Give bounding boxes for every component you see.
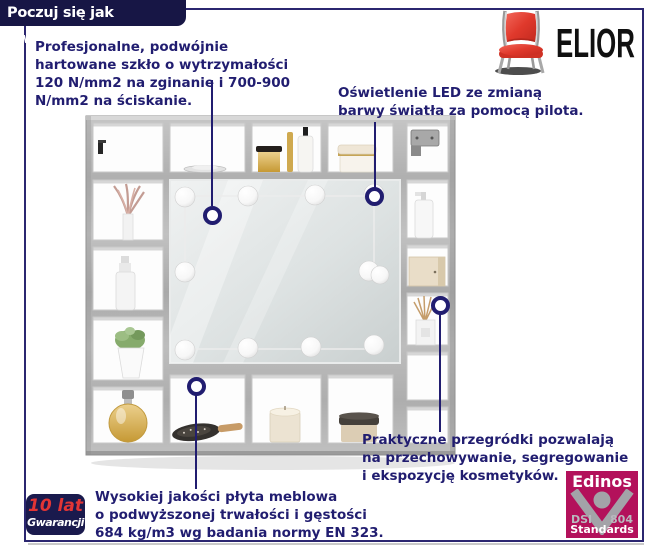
callout-glass: Profesjonalne, podwójnie hartowane szkło… xyxy=(35,38,290,110)
warranty-label: Gwarancji xyxy=(26,516,85,530)
callout-board-line2: o podwyższonej trwałości i gęstości xyxy=(95,506,384,524)
product-infographic: Poczuj się jak gwiazda! ELIOR xyxy=(0,0,650,560)
callout-ring-glass xyxy=(203,206,222,225)
callout-glass-line4: N/mm2 na ściskanie. xyxy=(35,92,290,110)
callout-led-line2: barwy światła za pomocą pilota. xyxy=(338,102,584,120)
callout-shelves-line2: na przechowywanie, segregowanie xyxy=(362,449,628,467)
product-image-mirror-cabinet xyxy=(78,110,458,476)
frame-border-top xyxy=(184,8,644,10)
edinos-brand: Edinos xyxy=(566,472,638,491)
callout-shelves-line1: Praktyczne przegródki pozwalają xyxy=(362,431,628,449)
led-bulb xyxy=(175,187,195,207)
led-bulb xyxy=(175,262,195,282)
candle xyxy=(270,406,300,442)
led-bulb xyxy=(364,335,384,355)
callout-line-board xyxy=(195,395,197,489)
led-bulb xyxy=(175,340,195,360)
edinos-standards: Standards xyxy=(566,523,638,536)
callout-led-line1: Oświetlenie LED ze zmianą xyxy=(338,84,584,102)
cream-jar xyxy=(338,145,376,172)
frame-border-right xyxy=(642,8,644,542)
callout-line-glass xyxy=(211,80,213,206)
callout-line-shelves xyxy=(439,314,441,432)
callout-board-line3: 684 kg/m3 wg badania normy EN 323. xyxy=(95,524,384,542)
red-chair-icon xyxy=(494,10,548,76)
tray xyxy=(184,165,226,172)
callout-led: Oświetlenie LED ze zmianą barwy światła … xyxy=(338,84,584,120)
callout-ring-led xyxy=(365,187,384,206)
led-bulb xyxy=(238,338,258,358)
led-bulb xyxy=(301,337,321,357)
warranty-value: 10 lat xyxy=(26,497,85,516)
edinos-badge: Edinos DSI 804 Standards xyxy=(566,471,638,538)
warranty-badge: 10 lat Gwarancji xyxy=(26,494,85,535)
promo-banner: Poczuj się jak gwiazda! xyxy=(0,0,186,26)
frame-border-left xyxy=(24,25,26,542)
callout-glass-line3: 120 N/mm2 na zginanie i 700-900 xyxy=(35,74,290,92)
callout-glass-line1: Profesjonalne, podwójnie xyxy=(35,38,290,56)
callout-ring-board xyxy=(187,377,206,396)
callout-glass-line2: hartowane szkło o wytrzymałości xyxy=(35,56,290,74)
callout-board: Wysokiej jakości płyta meblowa o podwyżs… xyxy=(95,488,384,542)
callout-line-led xyxy=(374,122,376,188)
frame-border-shadow xyxy=(28,543,644,545)
callout-ring-shelves xyxy=(431,296,450,315)
led-bulb xyxy=(371,266,389,284)
callout-board-line1: Wysokiej jakości płyta meblowa xyxy=(95,488,384,506)
led-bulb xyxy=(305,185,325,205)
storage-box xyxy=(409,257,445,286)
brand-name: ELIOR xyxy=(556,24,635,62)
led-bulb xyxy=(238,186,258,206)
